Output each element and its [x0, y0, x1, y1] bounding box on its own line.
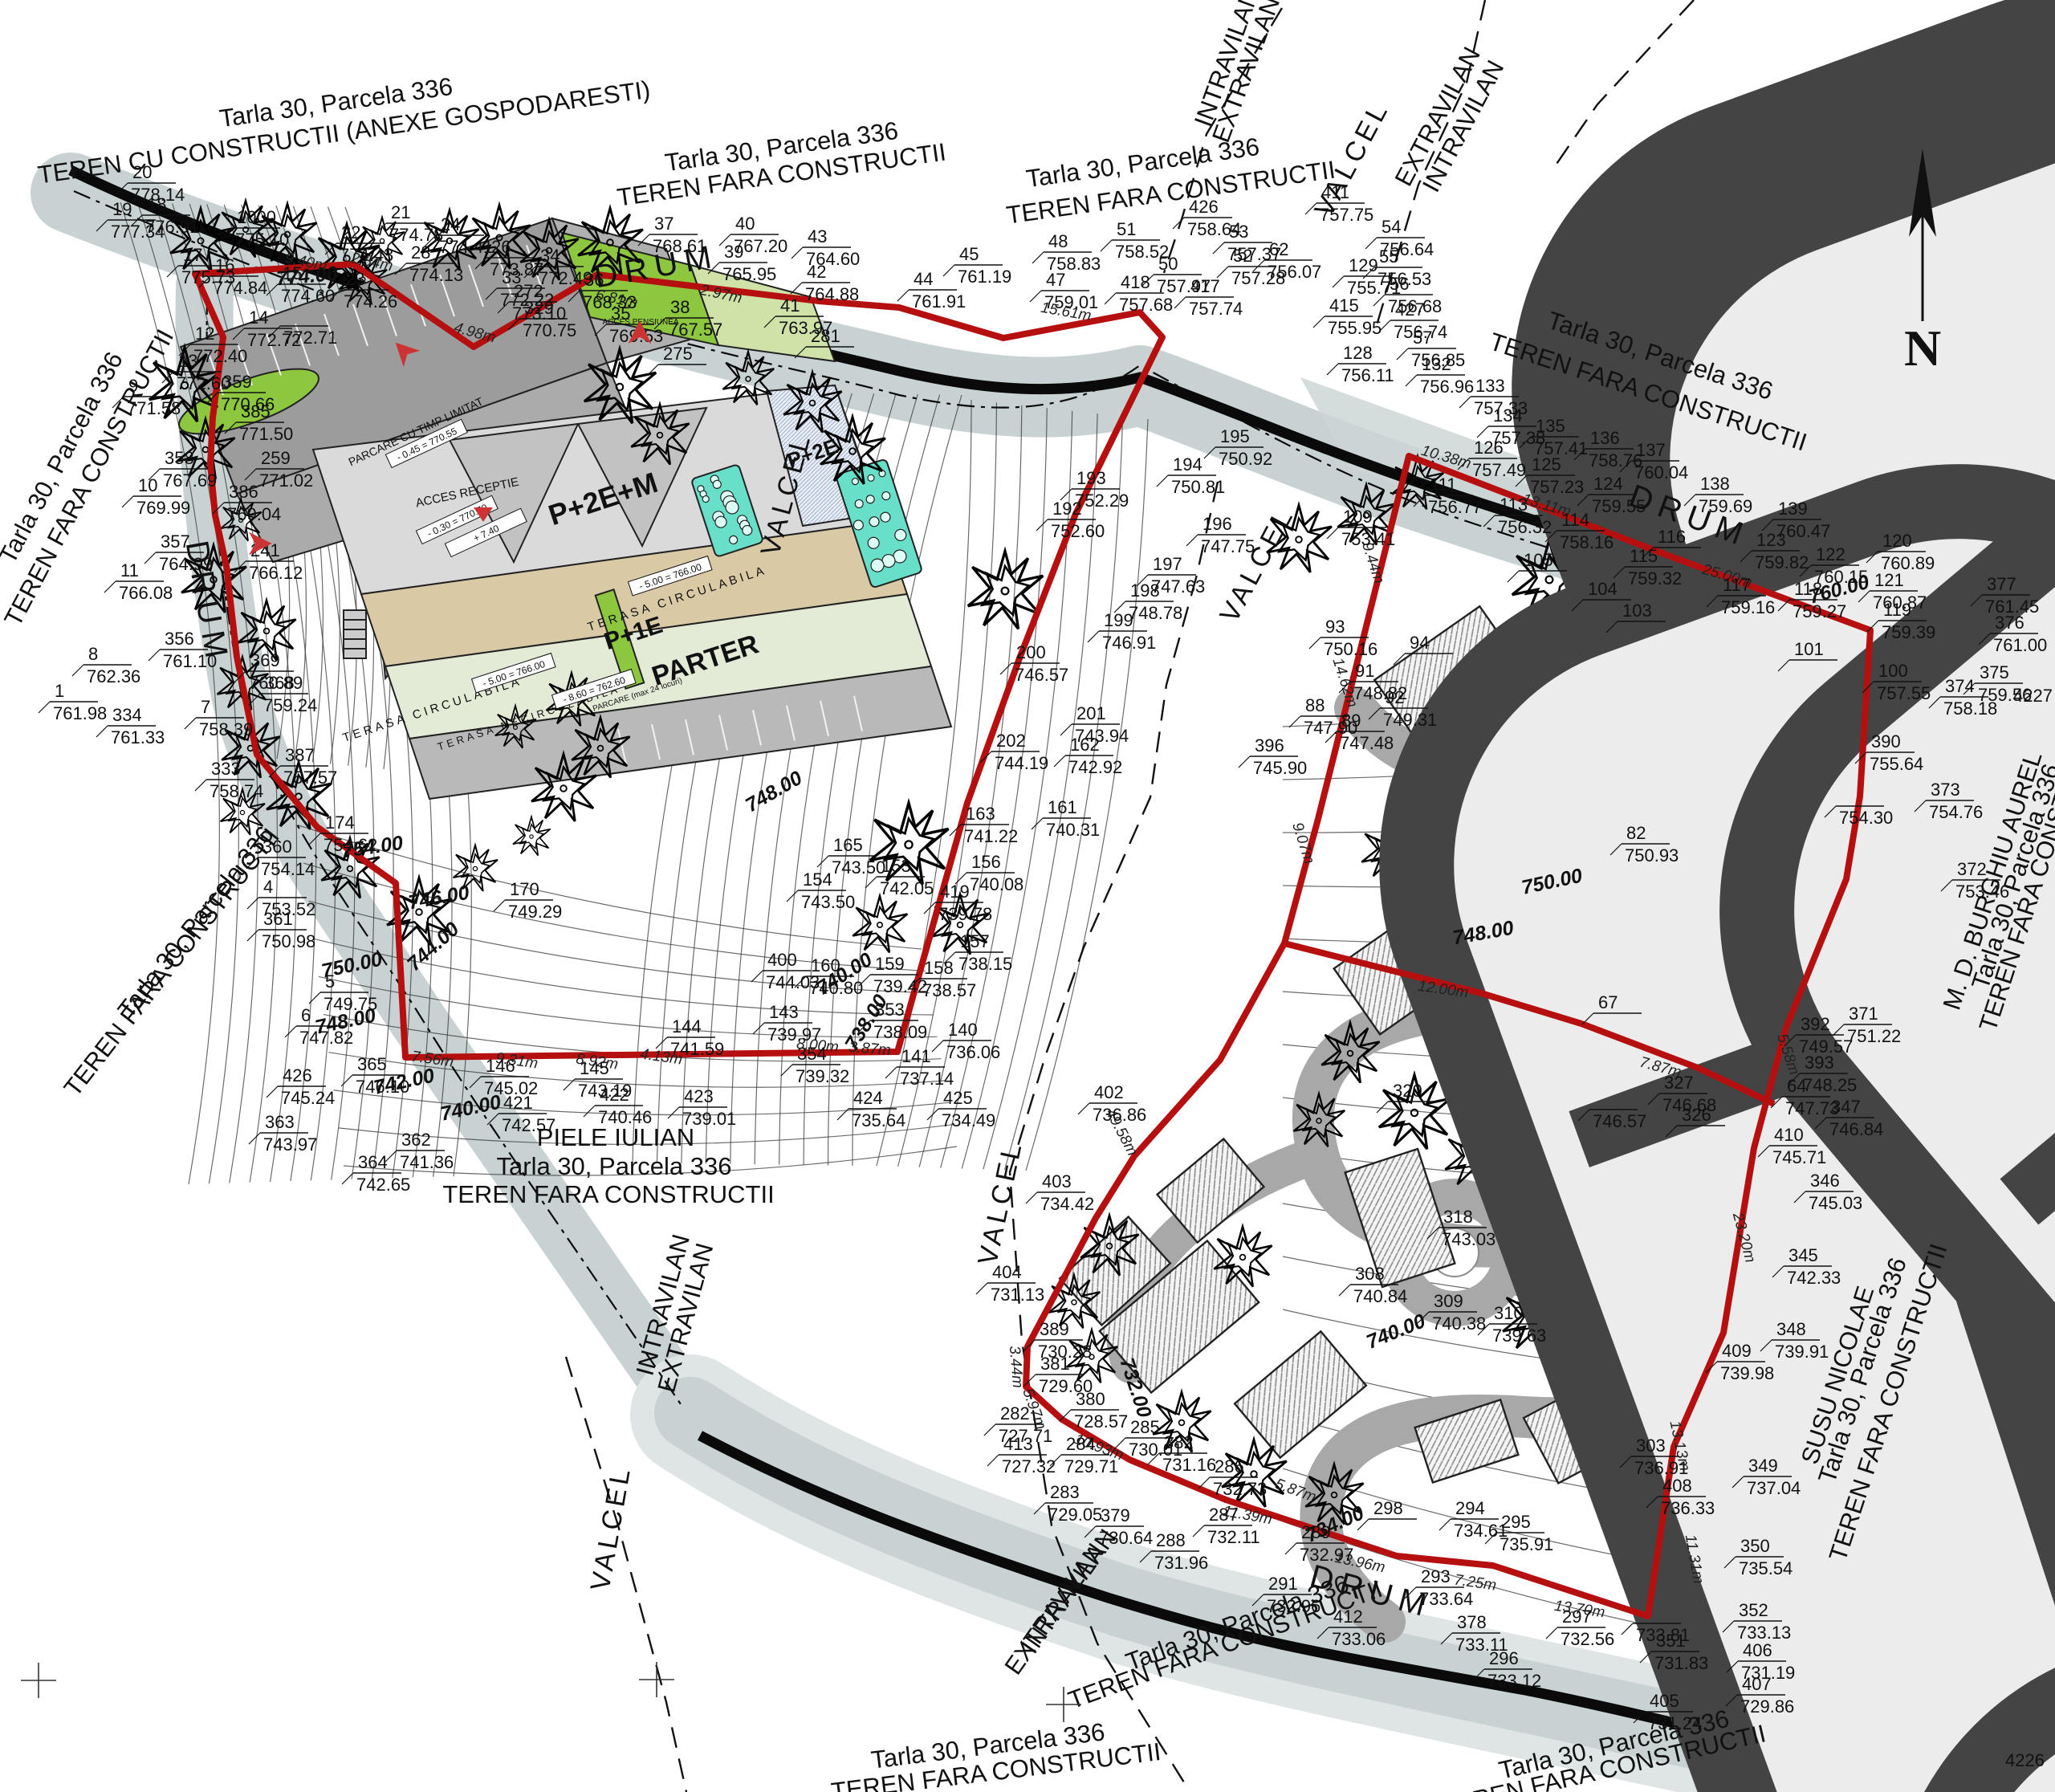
- survey-point-elevation: 749.75: [324, 994, 377, 1014]
- survey-point-elevation: 735.54: [1739, 1558, 1793, 1578]
- survey-point-number: 354: [797, 1044, 827, 1064]
- survey-point-elevation: 731.83: [1654, 1653, 1708, 1673]
- survey-point-number: 8: [88, 644, 98, 664]
- survey-point-number: 310: [1494, 1303, 1524, 1323]
- survey-point-number: 139: [1778, 499, 1808, 519]
- survey-point-number: 326: [1682, 1105, 1711, 1125]
- survey-point-number: 18: [147, 194, 166, 214]
- survey-point-leader-tick: [341, 1075, 352, 1086]
- survey-point-number: 4: [263, 877, 273, 897]
- survey-point-number: 390: [1871, 731, 1901, 751]
- survey-point-number: 400: [767, 950, 797, 970]
- survey-point-number: 424: [853, 1088, 883, 1108]
- survey-point-leader-tick: [1365, 238, 1377, 249]
- survey-point-number: 353: [875, 1000, 905, 1020]
- survey-point: 47759.01: [1030, 270, 1098, 312]
- survey-point-number: 162: [1070, 735, 1100, 755]
- survey-point-number: 281: [811, 326, 840, 346]
- survey-point-leader-tick: [1193, 1525, 1204, 1537]
- survey-point-number: 334: [112, 705, 142, 725]
- survey-point-number: 298: [1373, 1498, 1403, 1518]
- survey-point-elevation: 741.36: [400, 1152, 454, 1172]
- survey-point-number: 115: [1630, 546, 1658, 566]
- survey-point-number: 23: [345, 269, 364, 289]
- survey-point-elevation: 760.15: [1814, 567, 1868, 587]
- survey-point-number: 55: [1379, 246, 1398, 267]
- survey-point-number: 14: [249, 307, 268, 328]
- survey-point-elevation: 774.43: [340, 245, 393, 265]
- survey-point-elevation: 742.65: [356, 1175, 410, 1195]
- survey-point-elevation: 739.91: [1775, 1342, 1829, 1362]
- survey-point-leader-tick: [1101, 240, 1112, 251]
- survey-point-leader-tick: [787, 890, 798, 902]
- survey-point-number: 126: [1474, 438, 1504, 458]
- survey-point-number: 202: [996, 731, 1026, 751]
- survey-point-number: 67: [1598, 992, 1618, 1012]
- survey-point-number: 198: [1130, 580, 1160, 601]
- contour-elevation-label: 740.00: [1363, 1309, 1428, 1354]
- survey-point-elevation: 762.36: [87, 666, 140, 686]
- survey-point-number: 288: [1156, 1530, 1186, 1550]
- survey-point-elevation: 759.39: [1882, 622, 1935, 642]
- survey-point-elevation: 739.98: [1720, 1363, 1774, 1383]
- survey-point-number: 37: [654, 214, 673, 234]
- survey-point-number: 165: [833, 835, 863, 855]
- survey-point-number: 20: [132, 162, 152, 182]
- survey-point-leader-tick: [72, 665, 83, 676]
- survey-point-number: 386: [229, 482, 258, 502]
- survey-point: 396745.90: [1239, 735, 1307, 778]
- survey-point-number: 119: [1883, 600, 1911, 620]
- survey-point-number: 136: [1590, 428, 1620, 448]
- survey-point-number: 407: [1742, 1674, 1772, 1694]
- survey-point-number: 38: [670, 297, 690, 317]
- survey-point-number: 345: [1788, 1245, 1818, 1265]
- site-plan-canvas: { "meta": {"title": "Plan de situatie - …: [0, 0, 2055, 1792]
- survey-point-number: 39: [724, 242, 743, 262]
- survey-point-elevation: 733.12: [1487, 1671, 1541, 1691]
- survey-point-number: 138: [1700, 474, 1730, 494]
- survey-point-number: 1: [55, 681, 64, 701]
- survey-point-number: 374: [1945, 676, 1975, 696]
- survey-point-number: 40: [735, 214, 755, 234]
- survey-point-number: 124: [1593, 474, 1623, 494]
- survey-point-number: 6: [301, 1005, 311, 1025]
- survey-point-elevation: 746.10: [356, 1077, 409, 1097]
- survey-point-leader-tick: [1377, 1102, 1388, 1113]
- survey-point-elevation: 766.08: [119, 583, 173, 603]
- survey-point-leader-tick: [584, 1106, 595, 1117]
- survey-point-elevation: 771.58: [127, 398, 181, 418]
- survey-point-number: 94: [1410, 633, 1429, 653]
- survey-point-number: 47: [1046, 270, 1065, 290]
- survey-point-number: 412: [1333, 1607, 1363, 1627]
- survey-point-elevation: 753.41: [1341, 529, 1395, 549]
- survey-point-elevation: 761.98: [53, 703, 107, 723]
- survey-point-number: 418: [1121, 272, 1150, 292]
- survey-point-number: 16: [215, 255, 234, 275]
- survey-point-elevation: 756.07: [1268, 262, 1321, 282]
- survey-point-elevation: 745.24: [281, 1088, 335, 1108]
- survey-point-number: 411: [1321, 182, 1349, 202]
- survey-point-number: 159: [875, 954, 905, 974]
- survey-point-elevation: 749.29: [508, 902, 562, 922]
- survey-point-elevation: 740.46: [598, 1107, 652, 1127]
- survey-point-leader-tick: [195, 780, 206, 791]
- survey-point-leader-tick: [1174, 297, 1186, 308]
- survey-point-leader-tick: [96, 726, 108, 737]
- survey-point-leader-tick: [285, 1026, 296, 1037]
- survey-point-leader-tick: [1309, 637, 1320, 649]
- survey-point-leader-tick: [943, 265, 954, 276]
- survey-point-elevation: 736.33: [1661, 1498, 1715, 1518]
- survey-point-number: 408: [1662, 1476, 1692, 1496]
- survey-point-number: 296: [1489, 1648, 1519, 1668]
- survey-point-leader-tick: [1036, 519, 1048, 531]
- survey-point-elevation: 759.82: [1755, 552, 1809, 572]
- survey-point-elevation: 775.10: [235, 230, 289, 250]
- survey-point-elevation: 757.75: [1320, 205, 1373, 225]
- survey-point-number: 21: [391, 202, 410, 222]
- survey-point-number: 380: [1076, 1389, 1105, 1409]
- survey-point-elevation: 736.86: [1093, 1105, 1146, 1125]
- survey-point-number: 104: [1588, 579, 1618, 599]
- survey-point-number: 53: [1229, 222, 1248, 242]
- survey-point-number: 24: [441, 214, 460, 234]
- survey-point-elevation: 764.99: [159, 554, 213, 574]
- survey-point-number: 289: [1301, 1522, 1331, 1542]
- survey-point-elevation: 744.19: [995, 753, 1048, 773]
- survey-point-elevation: 746.57: [1593, 1111, 1646, 1131]
- survey-point-number: 154: [803, 870, 832, 890]
- survey-point-leader-tick: [185, 718, 196, 729]
- survey-point-number: 109: [1343, 507, 1373, 527]
- survey-point: 45761.19: [943, 244, 1011, 287]
- survey-point-elevation: 750.98: [262, 931, 315, 951]
- survey-point-elevation: 743.50: [832, 857, 885, 878]
- survey-point-number: 360: [262, 837, 292, 857]
- survey-point-elevation: 759.55: [1592, 496, 1646, 516]
- survey-point-elevation: 746.84: [1829, 1119, 1883, 1139]
- survey-point-number: 402: [1094, 1082, 1124, 1102]
- survey-point-elevation: 757.49: [1472, 460, 1526, 480]
- survey-point-number: 88: [1305, 695, 1325, 715]
- survey-point-number: 116: [1658, 527, 1686, 547]
- survey-point-elevation: 769.99: [136, 498, 190, 518]
- survey-point: 161740.31: [1032, 797, 1100, 840]
- survey-point-elevation: 737.04: [1747, 1478, 1801, 1498]
- survey-point-leader-tick: [1477, 426, 1488, 438]
- survey-point-number: 393: [1805, 1053, 1834, 1073]
- survey-point-number: 372: [1957, 859, 1987, 879]
- survey-point-elevation: 757.55: [1877, 683, 1931, 703]
- survey-point-elevation: 751.22: [1847, 1026, 1901, 1046]
- survey-point-leader-tick: [1333, 276, 1344, 287]
- survey-point-elevation: 757.57: [283, 768, 337, 788]
- survey-point-elevation: 750.16: [1324, 639, 1377, 659]
- survey-point-number: 193: [1076, 468, 1106, 488]
- survey-point-number: 144: [672, 1016, 702, 1037]
- survey-point-elevation: 769.04: [227, 504, 281, 524]
- survey-point-number: 318: [1443, 1207, 1473, 1227]
- survey-point-elevation: 756.96: [1420, 377, 1474, 397]
- survey-point-elevation: 743.50: [801, 892, 855, 912]
- survey-point-leader-tick: [247, 930, 258, 941]
- north-label: N: [1904, 320, 1941, 377]
- survey-point-elevation: 767.69: [163, 470, 217, 491]
- survey-point-elevation: 761.00: [1993, 635, 2047, 655]
- survey-point-number: 28: [411, 242, 430, 263]
- survey-point-leader-tick: [817, 856, 828, 867]
- survey-point-elevation: 768.61: [653, 236, 706, 256]
- survey-point-elevation: 747.48: [1340, 733, 1394, 753]
- survey-point-leader-tick: [751, 971, 763, 982]
- survey-point-number: 170: [510, 879, 539, 899]
- survey-point-elevation: 738.57: [922, 980, 976, 1000]
- survey-point-leader-tick: [885, 1067, 897, 1078]
- survey-point-leader-tick: [1217, 267, 1228, 278]
- survey-point: 362741.36: [385, 1130, 454, 1172]
- grid-coordinate-label: 4227: [2013, 686, 2053, 706]
- survey-point-leader-tick: [122, 496, 133, 507]
- survey-point-elevation: 747.82: [299, 1028, 353, 1048]
- survey-point-elevation: 756.11: [1341, 365, 1394, 385]
- survey-point-number: 12: [195, 324, 214, 344]
- survey-point-number: 417: [1190, 276, 1220, 296]
- stairs: [344, 610, 366, 658]
- tree-icon: [513, 817, 551, 855]
- survey-point-number: 291: [1268, 1574, 1298, 1594]
- survey-point: 294734.61: [1439, 1498, 1508, 1541]
- survey-point-elevation: 776.91: [145, 217, 199, 237]
- survey-point-number: 426: [283, 1065, 312, 1085]
- survey-point-elevation: 759.69: [1699, 496, 1752, 516]
- survey-point: 403734.42: [1026, 1171, 1094, 1214]
- survey-point-elevation: 740.38: [1432, 1313, 1486, 1334]
- survey-point-leader-tick: [1239, 756, 1250, 768]
- survey-point-leader-tick: [267, 1086, 278, 1098]
- survey-point: 733.81: [1622, 1623, 1690, 1645]
- survey-point-elevation: 732.56: [1561, 1629, 1614, 1649]
- survey-point-number: 44: [914, 269, 933, 289]
- survey-point-number: 287: [1209, 1505, 1239, 1525]
- survey-point-number: 423: [684, 1086, 714, 1106]
- survey-point-number: 133: [1475, 376, 1505, 396]
- survey-point-elevation: 774.13: [409, 265, 463, 285]
- survey-point-number: 364: [358, 1152, 388, 1172]
- survey-point-leader-tick: [932, 1041, 943, 1052]
- survey-point-elevation: 740.84: [1353, 1286, 1407, 1306]
- survey-point-elevation: 758.39: [199, 719, 253, 739]
- survey-point-leader-tick: [1000, 663, 1011, 674]
- survey-point-number: 362: [401, 1130, 431, 1150]
- survey-point-number: 146: [486, 1056, 515, 1076]
- survey-point-elevation: 774.41: [439, 237, 493, 257]
- survey-point-number: 7: [201, 697, 210, 717]
- survey-point-number: 297: [1562, 1607, 1592, 1627]
- survey-point-leader-tick: [249, 1133, 260, 1144]
- survey-point-leader-tick: [1078, 1103, 1089, 1114]
- survey-point: 365746.10: [341, 1054, 409, 1097]
- survey-point-number: 421: [503, 1093, 533, 1113]
- survey-point-elevation: 774.60: [281, 286, 335, 306]
- survey-point-number: 129: [1349, 255, 1378, 275]
- survey-point-leader-tick: [1060, 724, 1072, 735]
- survey-point-number: 196: [1202, 514, 1232, 534]
- area-label: Tarla 30, Parcela 336: [497, 1152, 732, 1180]
- survey-point-elevation: 754.30: [1839, 808, 1893, 828]
- survey-point-leader-tick: [927, 1109, 938, 1120]
- survey-point-number: 283: [1050, 1482, 1080, 1502]
- survey-point-elevation: 761.10: [163, 651, 217, 671]
- survey-point-elevation: 737.14: [900, 1069, 954, 1089]
- survey-point-number: 50: [1158, 254, 1178, 274]
- survey-point-number: 358: [165, 448, 194, 468]
- survey-point-elevation: 750.81: [1171, 477, 1225, 497]
- survey-point-number: 422: [600, 1085, 629, 1105]
- survey-point-number: 356: [165, 629, 194, 649]
- survey-point-number: 123: [1756, 530, 1786, 550]
- survey-point-elevation: 729.05: [1048, 1505, 1102, 1525]
- survey-point-leader-tick: [668, 1107, 679, 1118]
- survey-point-number: 158: [924, 958, 954, 978]
- survey-point-leader-tick: [104, 581, 116, 593]
- survey-point-leader-tick: [1105, 293, 1116, 304]
- survey-point-elevation: 759.24: [263, 695, 317, 715]
- survey-point-elevation: 742.92: [1068, 757, 1122, 777]
- survey-point: 44761.91: [897, 269, 966, 312]
- survey-point-number: 282: [1000, 1403, 1030, 1423]
- survey-point-leader-tick: [1508, 571, 1519, 582]
- survey-point-number: 141: [901, 1046, 931, 1066]
- survey-point-number: 157: [960, 931, 990, 951]
- survey-point-leader-tick: [1026, 1192, 1037, 1203]
- survey-point-number: 163: [966, 804, 995, 824]
- survey-point-leader-tick: [1088, 631, 1099, 642]
- survey-point-elevation: 748.25: [1803, 1075, 1857, 1095]
- survey-point-number: 195: [1220, 426, 1250, 446]
- survey-point-number: 413: [1003, 1434, 1033, 1454]
- survey-point-elevation: 774.26: [344, 291, 397, 312]
- survey-point-number: 91: [1355, 661, 1374, 681]
- survey-point-number: 56: [1390, 274, 1409, 294]
- survey-point-number: 197: [1153, 554, 1182, 574]
- survey-point-number: 134: [1493, 405, 1523, 426]
- survey-point-elevation: 739.97: [767, 1024, 821, 1045]
- survey-point-number: 82: [1626, 823, 1646, 843]
- survey-point-number: 62: [1269, 239, 1288, 259]
- survey-point-number: 371: [1849, 1004, 1878, 1024]
- survey-point-number: 135: [1536, 416, 1565, 436]
- survey-point-elevation: 760.89: [1881, 553, 1935, 573]
- survey-point-elevation: 771.50: [239, 424, 293, 444]
- survey-point-number: 368: [265, 673, 295, 693]
- survey-point-elevation: 772.40: [193, 346, 247, 366]
- survey-point-number: 5: [325, 971, 335, 992]
- survey-point-elevation: 761.91: [912, 291, 966, 312]
- survey-point-number: 15: [283, 263, 302, 283]
- area-label: VALCEL: [585, 1463, 637, 1593]
- survey-point-number: 295: [1501, 1512, 1531, 1532]
- survey-point-leader-tick: [1327, 364, 1338, 375]
- survey-point-elevation: 742.33: [1787, 1268, 1841, 1288]
- survey-point-number: 285: [1130, 1417, 1160, 1437]
- distance-label: 3.44m: [1006, 1345, 1027, 1388]
- survey-point-number: 128: [1343, 343, 1373, 363]
- survey-point-number: 192: [1052, 499, 1082, 519]
- survey-point-number: 89: [1341, 711, 1361, 731]
- survey-point-number: 101: [1794, 639, 1824, 659]
- survey-point-elevation: 739.78: [938, 904, 992, 924]
- survey-point-number: 379: [1101, 1505, 1130, 1525]
- survey-point-elevation: 759.32: [1628, 568, 1682, 589]
- site-plan: Tarla 30, Parcela 336TEREN CU CONSTRUCTI…: [0, 0, 2055, 1792]
- area-label: VALCEL: [972, 1138, 1028, 1268]
- survey-point-elevation: 735.64: [852, 1110, 905, 1130]
- survey-point-number: 406: [1743, 1640, 1772, 1660]
- survey-point-elevation: 734.49: [942, 1110, 995, 1130]
- survey-point-number: 118: [1794, 579, 1822, 599]
- survey-point-elevation: 736.06: [946, 1042, 1000, 1062]
- survey-point-elevation: 729.71: [1064, 1456, 1118, 1476]
- survey-point-leader-tick: [144, 552, 156, 564]
- survey-point-elevation: 758.74: [210, 781, 263, 801]
- survey-point-elevation: 757.23: [1530, 477, 1584, 497]
- survey-point-elevation: 765.95: [722, 264, 776, 284]
- survey-point-number: 309: [1434, 1291, 1463, 1311]
- survey-point-number: 35: [611, 303, 630, 324]
- survey-point-number: 405: [1650, 1691, 1679, 1711]
- survey-point-elevation: 758.16: [1560, 532, 1613, 552]
- survey-point-leader-tick: [791, 283, 802, 294]
- survey-point-elevation: 761.33: [111, 727, 165, 747]
- survey-point-number: 10: [138, 475, 157, 495]
- survey-point-leader-tick: [1032, 252, 1044, 263]
- survey-point-number: 36: [584, 270, 604, 290]
- survey-point-number: 105: [1524, 550, 1553, 570]
- survey-point: 284729.71: [1050, 1434, 1118, 1476]
- survey-point-elevation: 741.59: [670, 1039, 724, 1059]
- survey-point-elevation: 731.13: [991, 1285, 1044, 1305]
- survey-point-number: 111: [1430, 474, 1456, 495]
- survey-point-elevation: 743.03: [1442, 1229, 1495, 1249]
- survey-point-number: 381: [1040, 1354, 1070, 1374]
- survey-point-elevation: 755.95: [1328, 318, 1382, 338]
- survey-point-number: 45: [959, 244, 979, 264]
- survey-point-elevation: 761.19: [958, 267, 1011, 287]
- survey-point-elevation: 738.09: [873, 1022, 927, 1042]
- survey-point-leader-tick: [1406, 375, 1417, 386]
- survey-point-elevation: 740.08: [970, 874, 1023, 894]
- survey-point-number: 26: [491, 237, 511, 257]
- survey-point-number: 11: [120, 560, 139, 580]
- survey-point-elevation: 731.24: [1648, 1713, 1702, 1733]
- survey-point: 295735.91: [1485, 1512, 1553, 1554]
- survey-point-number: 361: [263, 909, 293, 929]
- survey-point-elevation: 758.18: [1943, 698, 1997, 719]
- survey-point-number: 377: [1987, 574, 2016, 594]
- survey-point-number: 294: [1455, 1498, 1485, 1518]
- survey-point-number: 43: [808, 226, 827, 246]
- survey-point-elevation: 774.84: [214, 278, 267, 298]
- survey-point-number: 57: [1413, 328, 1432, 348]
- survey-point-elevation: 764.88: [805, 284, 859, 304]
- survey-point-number: 143: [769, 1002, 799, 1022]
- survey-point-number: 427: [1395, 299, 1425, 320]
- survey-point-number: 308: [1355, 1264, 1385, 1284]
- survey-point-number: 293: [1421, 1566, 1451, 1586]
- survey-point-number: 284: [1066, 1434, 1096, 1454]
